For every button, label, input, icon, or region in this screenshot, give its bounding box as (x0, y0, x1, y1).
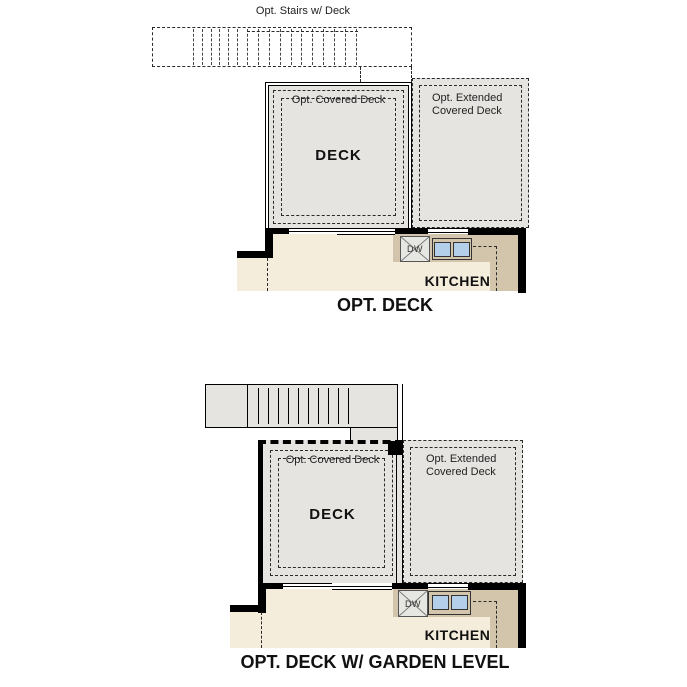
stair-landing (205, 384, 248, 428)
extended-deck-label-line2: Covered Deck (426, 466, 496, 479)
opt-stairs-connector-left (360, 67, 361, 82)
deck-label: DECK (266, 147, 411, 164)
wall-left-leg (237, 251, 268, 258)
kitchen-sink (428, 591, 471, 615)
opt-stairs-treads-right (247, 29, 357, 65)
kitchen-floor-left (237, 258, 277, 291)
wall-continuation-dash (267, 258, 268, 291)
stair-run (247, 384, 403, 428)
opt-stairs-inner-line (247, 31, 358, 32)
wall-right-vertical (518, 583, 526, 648)
dishwasher: DW (398, 590, 428, 617)
sink-basin-left (432, 595, 449, 610)
extended-deck-area: Opt. Extended Covered Deck (412, 78, 529, 228)
extended-deck-label-line1: Opt. Extended (432, 92, 502, 105)
wall-left-leg (230, 605, 261, 612)
kitchen-label: KITCHEN (405, 627, 510, 643)
wall-right-vertical (518, 228, 526, 293)
window-1 (289, 228, 337, 232)
dishwasher-label: DW (407, 244, 423, 254)
window-3 (428, 228, 468, 233)
stair-right-double-line (397, 384, 403, 442)
deck-area: Opt. Covered Deck DECK (258, 440, 403, 583)
plan-opt-deck: Opt. Stairs w/ Deck Opt. Covered Deck DE… (0, 0, 687, 330)
deck-corner-post (388, 441, 403, 455)
sink-basin-right (453, 242, 470, 257)
plan-opt-deck-garden-level: Opt. Covered Deck DECK Opt. Extended Cov… (0, 330, 687, 687)
kitchen-label: KITCHEN (405, 273, 510, 289)
stair-treads (258, 388, 353, 424)
wall-segment-2 (395, 228, 428, 234)
covered-deck-label: Opt. Covered Deck (266, 94, 411, 107)
window-2 (337, 231, 395, 235)
covered-deck-label: Opt. Covered Deck (263, 454, 402, 467)
sink-basin-left (434, 242, 451, 257)
plan-caption: OPT. DECK (235, 295, 535, 316)
sink-basin-right (451, 595, 468, 610)
window-2 (332, 586, 392, 590)
opt-stairs-label: Opt. Stairs w/ Deck (223, 5, 383, 18)
plan-caption: OPT. DECK W/ GARDEN LEVEL (155, 652, 595, 673)
wall-segment-1 (258, 583, 283, 589)
floorplan-sheet: Opt. Stairs w/ Deck Opt. Covered Deck DE… (0, 0, 687, 687)
opt-stairs-treads-left (193, 29, 238, 65)
dishwasher: DW (400, 236, 430, 262)
wall-segment-1 (265, 228, 289, 234)
wall-segment-2 (392, 583, 428, 589)
kitchen-floor-left (230, 612, 270, 648)
extended-deck-label-line1: Opt. Extended (426, 453, 496, 466)
extended-deck-area: Opt. Extended Covered Deck (403, 440, 523, 583)
extended-deck-label-line2: Covered Deck (432, 105, 502, 118)
kitchen-sink (432, 238, 472, 260)
deck-area: Opt. Covered Deck DECK (265, 82, 412, 232)
window-1 (283, 583, 332, 587)
dishwasher-label: DW (405, 599, 421, 609)
window-3 (428, 583, 468, 588)
deck-label: DECK (263, 506, 402, 523)
wall-continuation-dash (261, 612, 262, 648)
